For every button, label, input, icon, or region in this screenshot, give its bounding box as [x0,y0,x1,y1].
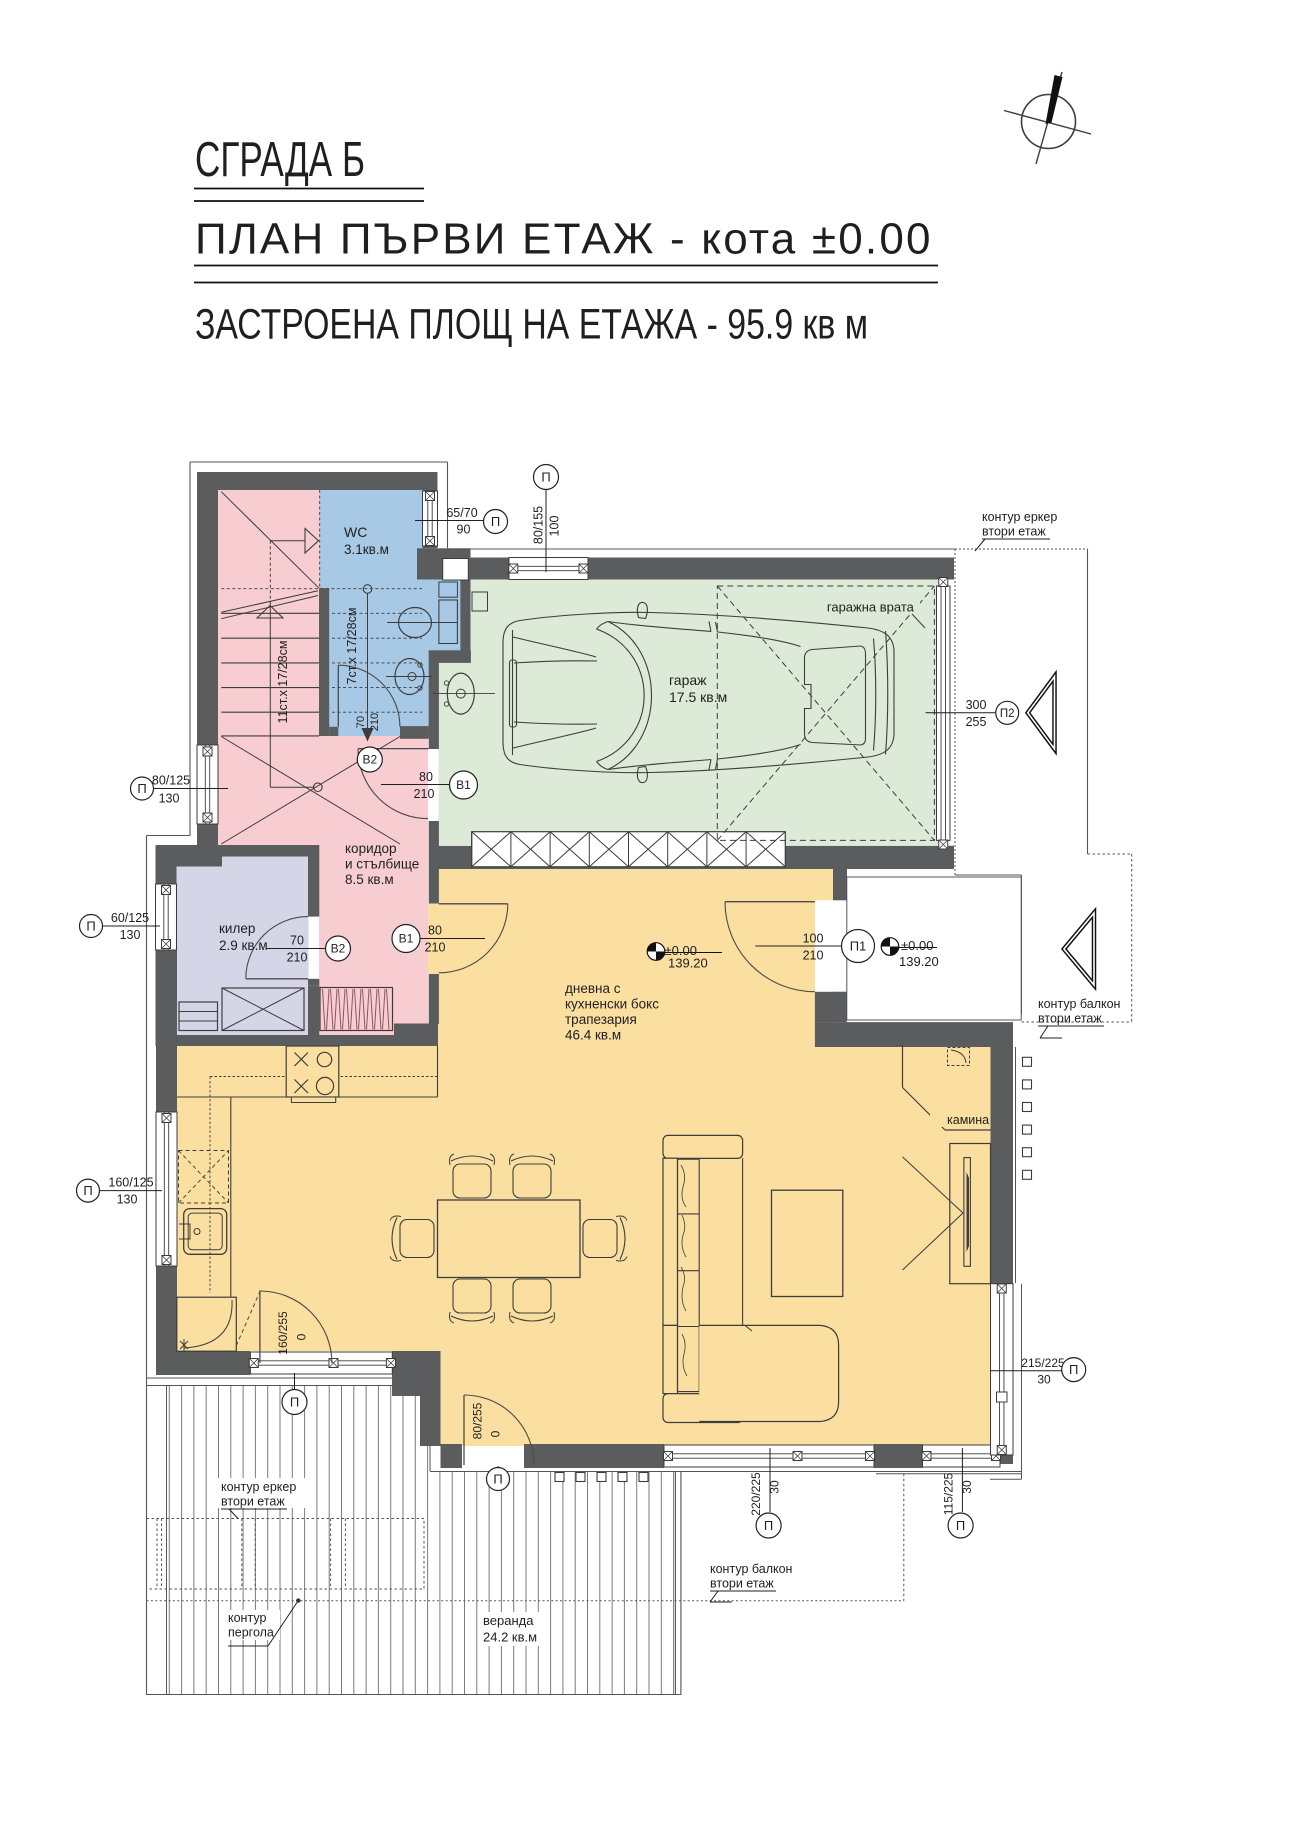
svg-text:П1: П1 [850,939,867,954]
svg-text:255: 255 [966,715,987,729]
svg-text:210: 210 [414,787,435,801]
svg-text:П2: П2 [1000,708,1015,720]
svg-text:В1: В1 [456,778,471,792]
svg-text:80: 80 [428,924,442,938]
svg-text:11ст.x 17/28см: 11ст.x 17/28см [276,641,290,724]
svg-text:139.20: 139.20 [668,956,708,971]
svg-text:70: 70 [290,934,304,948]
svg-text:17.5 кв.м: 17.5 кв.м [669,689,727,705]
svg-text:139.20: 139.20 [899,954,939,969]
svg-text:и стълбище: и стълбище [345,857,419,872]
svg-text:100: 100 [803,932,824,946]
svg-text:гаражна врата: гаражна врата [827,600,915,615]
svg-text:П: П [137,781,146,796]
svg-text:П: П [764,1518,773,1533]
svg-text:90: 90 [457,523,471,537]
svg-text:130: 130 [159,792,180,806]
svg-text:24.2 кв.м: 24.2 кв.м [483,1630,537,1645]
svg-text:80/255: 80/255 [471,1402,485,1439]
svg-text:130: 130 [120,928,141,942]
svg-text:±0.00: ±0.00 [901,938,933,953]
svg-text:3.1кв.м: 3.1кв.м [344,542,389,557]
svg-text:80/125: 80/125 [152,774,190,788]
svg-text:210: 210 [287,951,308,965]
svg-text:0: 0 [295,1333,309,1340]
svg-text:ПЛАН ПЪРВИ ЕТАЖ - кота ±0.00: ПЛАН ПЪРВИ ЕТАЖ - кота ±0.00 [195,215,933,264]
svg-text:210: 210 [803,949,824,963]
svg-text:220/225: 220/225 [749,1472,763,1516]
svg-text:коридор: коридор [345,841,397,856]
svg-text:П: П [956,1518,965,1533]
svg-text:гараж: гараж [669,672,707,688]
svg-text:втори етаж: втори етаж [982,525,1046,539]
svg-text:П: П [1069,1362,1078,1377]
svg-text:215/225: 215/225 [1021,1356,1065,1370]
svg-text:100: 100 [548,516,562,537]
svg-text:трапезария: трапезария [565,1012,637,1027]
svg-text:60/125: 60/125 [111,911,149,925]
svg-text:П: П [83,1183,92,1198]
svg-text:П: П [86,919,95,934]
svg-text:контур еркер: контур еркер [982,510,1057,524]
svg-text:7ст.x 17/28см: 7ст.x 17/28см [345,608,359,685]
svg-text:камина: камина [947,1113,989,1127]
svg-text:пергола: пергола [228,1626,274,1640]
svg-text:30: 30 [960,1480,974,1494]
svg-text:8.5 кв.м: 8.5 кв.м [345,872,394,887]
svg-text:кухненски бокс: кухненски бокс [565,997,659,1012]
svg-text:П: П [493,1472,502,1487]
svg-text:веранда: веранда [483,1613,534,1628]
svg-text:ЗАСТРОЕНА ПЛОЩ НА ЕТАЖА - 95.9: ЗАСТРОЕНА ПЛОЩ НА ЕТАЖА - 95.9 кв м [195,301,868,349]
svg-text:115/225: 115/225 [942,1472,956,1515]
svg-text:300: 300 [966,698,987,712]
svg-text:80/155: 80/155 [532,506,546,544]
svg-text:210: 210 [425,941,446,955]
svg-text:П: П [541,470,550,485]
svg-text:килер: килер [219,921,255,936]
svg-text:46.4 кв.м: 46.4 кв.м [565,1028,621,1043]
svg-text:80: 80 [419,770,433,784]
svg-text:контур балкон: контур балкон [710,1562,793,1576]
svg-text:2.9 кв.м: 2.9 кв.м [219,938,268,953]
svg-text:210: 210 [369,713,381,731]
svg-text:30: 30 [768,1480,782,1494]
svg-text:160/125: 160/125 [108,1176,153,1190]
svg-text:160/255: 160/255 [276,1311,290,1355]
svg-text:WC: WC [344,524,367,540]
svg-text:втори етаж: втори етаж [221,1495,285,1509]
svg-text:0: 0 [489,1430,503,1437]
svg-text:130: 130 [117,1193,138,1207]
svg-text:30: 30 [1037,1373,1051,1387]
svg-text:В1: В1 [399,932,414,946]
svg-text:П: П [290,1395,299,1410]
svg-text:СГРАДА Б: СГРАДА Б [195,133,365,187]
svg-text:70: 70 [355,716,367,728]
svg-text:втори етаж: втори етаж [710,1577,774,1591]
svg-text:П: П [491,514,500,529]
svg-text:контур балкон: контур балкон [1038,997,1121,1011]
svg-text:65/70: 65/70 [446,506,477,520]
svg-text:контур: контур [228,1611,266,1625]
svg-text:дневна с: дневна с [565,981,621,996]
svg-text:контур еркер: контур еркер [221,1480,296,1494]
svg-text:В2: В2 [362,753,377,767]
svg-text:втори етаж: втори етаж [1038,1012,1102,1026]
svg-text:В2: В2 [331,942,346,956]
